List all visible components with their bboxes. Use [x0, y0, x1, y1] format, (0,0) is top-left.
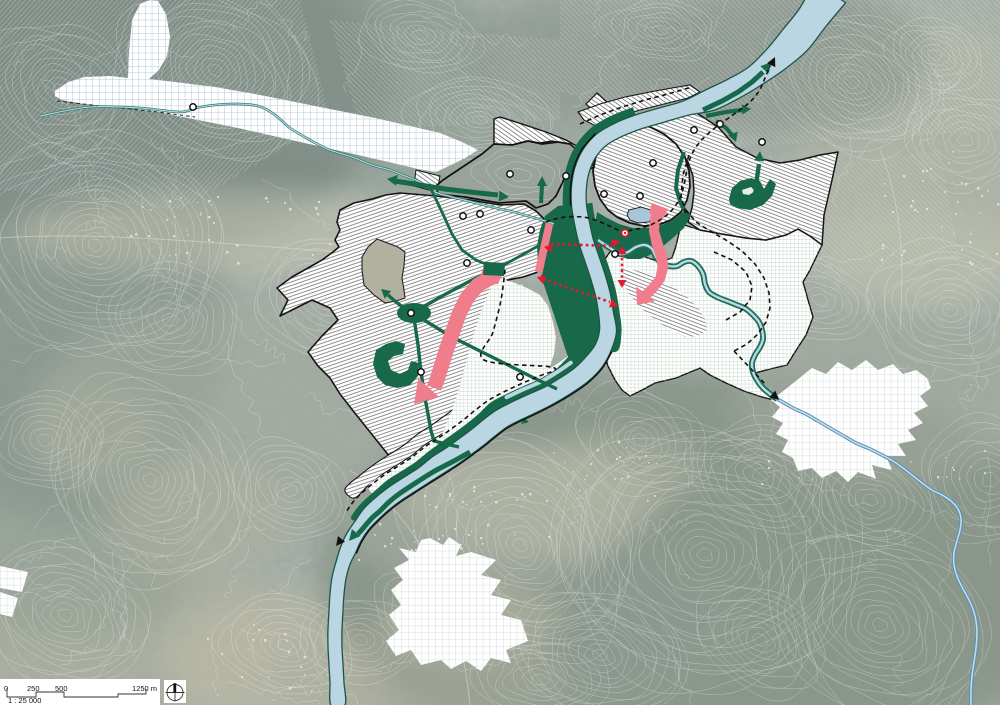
svg-text:0: 0 — [4, 684, 8, 693]
svg-text:1250 m: 1250 m — [132, 684, 157, 693]
